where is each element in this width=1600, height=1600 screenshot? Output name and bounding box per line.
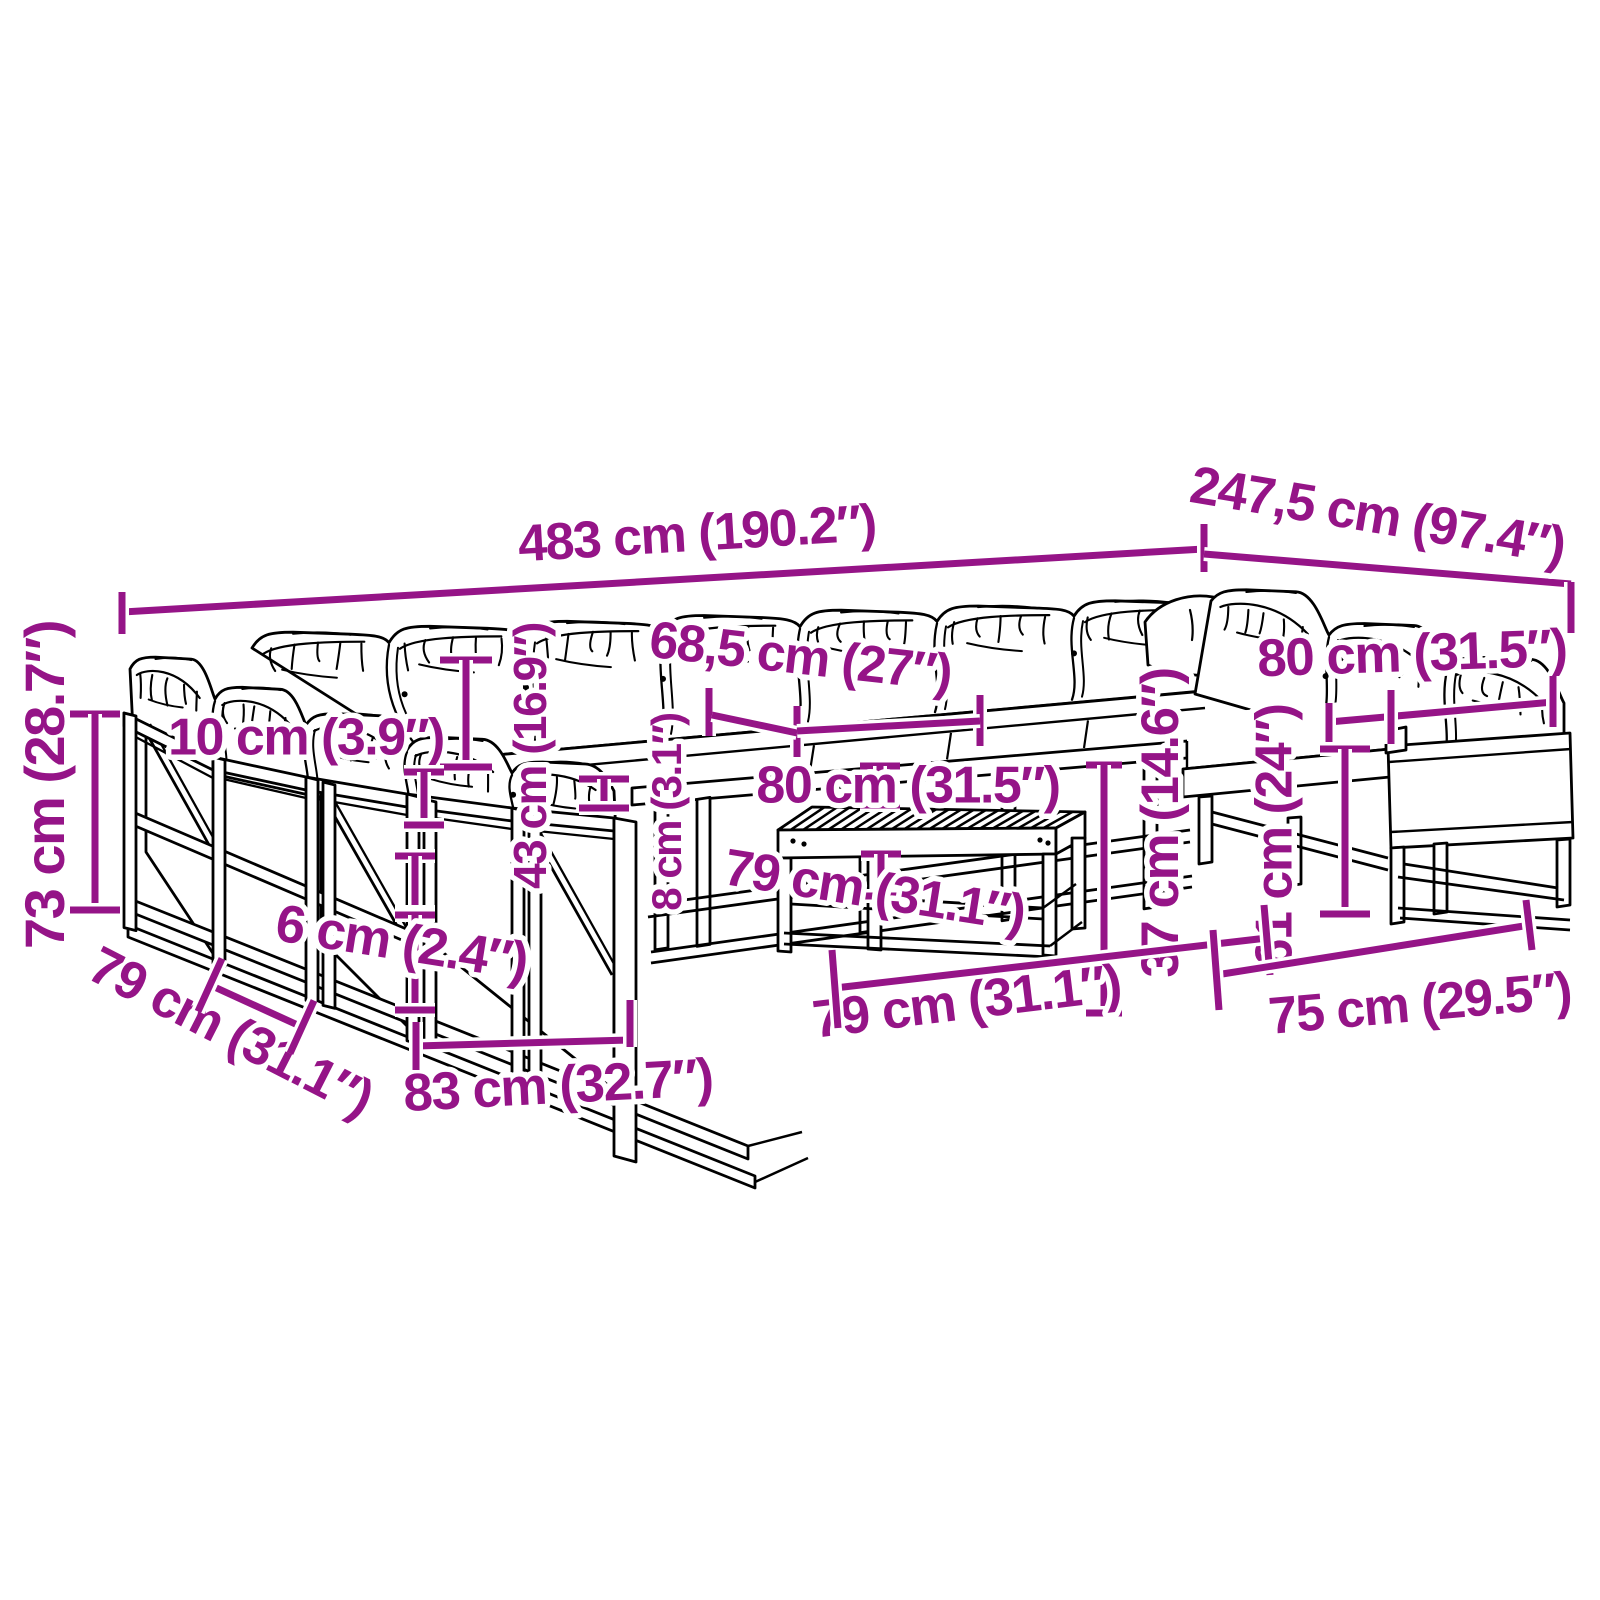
svg-text:37 cm (14.6″): 37 cm (14.6″) (1131, 668, 1190, 977)
svg-text:8 cm (3.1″): 8 cm (3.1″) (643, 713, 690, 910)
svg-text:73 cm (28.7″): 73 cm (28.7″) (13, 621, 76, 949)
svg-text:61 cm (24″): 61 cm (24″) (1246, 705, 1304, 968)
svg-text:80 cm (31.5″): 80 cm (31.5″) (756, 757, 1059, 815)
svg-text:43 cm (16.9″): 43 cm (16.9″) (504, 623, 556, 889)
svg-text:80 cm (31.5″): 80 cm (31.5″) (1256, 619, 1567, 689)
svg-text:10 cm (3.9″): 10 cm (3.9″) (168, 709, 444, 767)
